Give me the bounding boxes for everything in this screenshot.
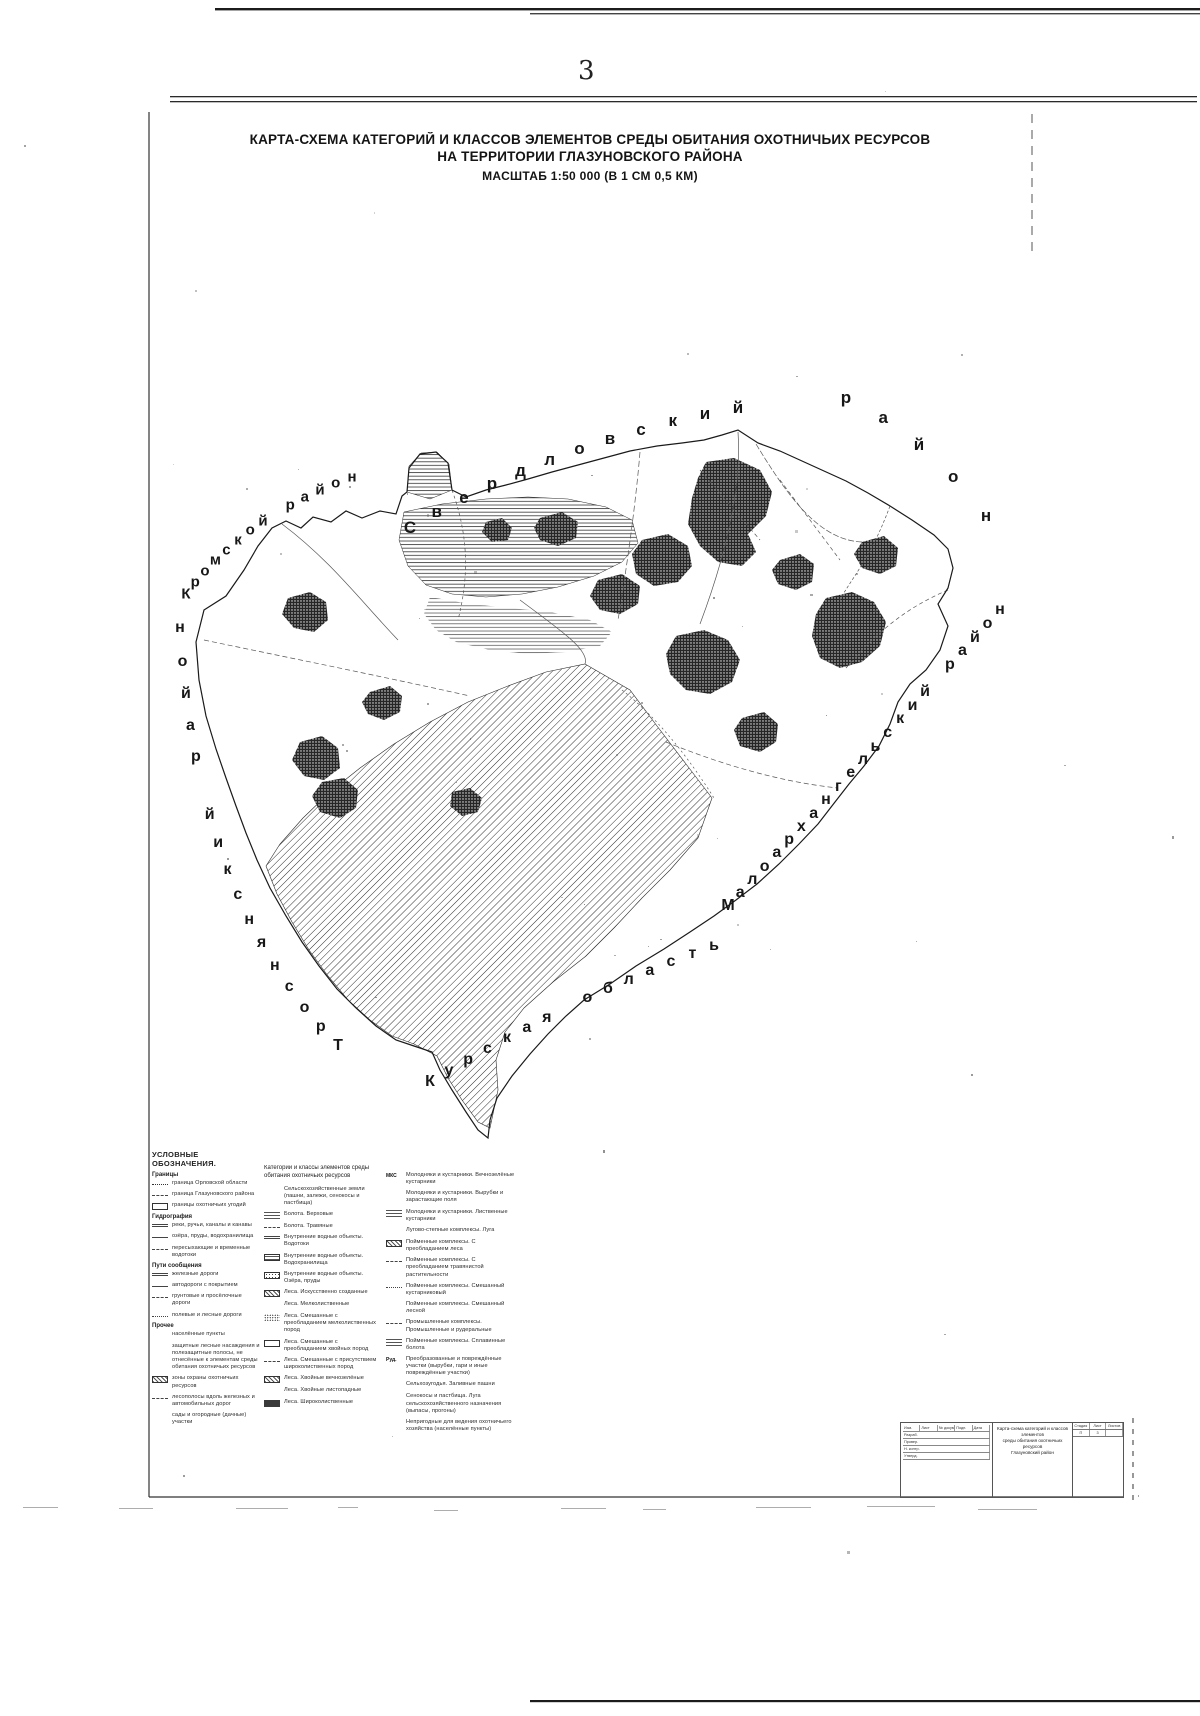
map-label-char-kurskaya: у	[445, 1062, 454, 1080]
scan-footer-noise	[561, 1508, 606, 1509]
legend-item: Внутренние водные объекты. Водотоки	[264, 1234, 380, 1248]
legend-item: защитные лесные насаждения и полезащитны…	[152, 1343, 260, 1372]
scan-noise-speck	[713, 597, 715, 599]
scan-footer-noise	[978, 1509, 1038, 1510]
map-label-char-kromskoy: м	[210, 552, 221, 569]
legend-item: Пойменные комплексы. Сплавинные болота	[386, 1338, 516, 1352]
title-block-title: Карта-схема категорий и классов элементо…	[993, 1423, 1073, 1497]
scan-noise-speck	[810, 594, 813, 597]
map-label-char-maloarkhangelsky: л	[858, 751, 868, 769]
map-label-char-maloarkhangelsky: х	[797, 818, 806, 836]
map-label-char-maloarkhangelsky: с	[883, 724, 892, 742]
legend-item: Молодняки и кустарники. Вырубки и зараст…	[386, 1190, 516, 1204]
title-block-title-line2: среды обитания охотничьих ресурсов	[995, 1438, 1070, 1450]
map-label-char-kurskaya: б	[603, 980, 613, 998]
scan-noise-speck	[660, 939, 662, 941]
legend-item-label: полевые и лесные дороги	[172, 1312, 242, 1319]
legend-column-2: Категории и классы элементов среды обита…	[264, 1165, 380, 1411]
map-label-char-maloarkhangelsky: н	[821, 791, 831, 809]
scan-noise-speck	[334, 814, 336, 816]
scan-noise-speck	[474, 571, 476, 573]
scan-noise-speck	[342, 744, 343, 745]
title-block-title-line1: Карта-схема категорий и классов элементо…	[995, 1426, 1070, 1438]
legend-swatch-blank	[386, 1382, 402, 1389]
legend-item-label: автодороги с покрытием	[172, 1282, 238, 1289]
stage-col-label: Стадия	[1073, 1423, 1090, 1429]
map-label-char-kromskoy: о	[331, 475, 340, 492]
stage-col-value	[1106, 1430, 1123, 1436]
legend-swatch-dark	[264, 1400, 280, 1407]
legend-swatch-tag: МКС	[386, 1173, 402, 1179]
map-label-char-maloarkhangelsky: й	[970, 629, 980, 647]
map-label-char-trosnyansky: с	[233, 886, 242, 904]
legend-item: лесополосы вдоль железных и автомобильны…	[152, 1394, 260, 1408]
legend-swatch-hatch	[386, 1240, 402, 1247]
scan-noise-speck	[470, 738, 472, 740]
legend-swatch-dash	[152, 1297, 168, 1298]
legend-swatch-blank	[264, 1187, 280, 1194]
scan-footer-noise	[23, 1507, 58, 1508]
legend-item: Внутренние водные объекты. Водохранилища	[264, 1253, 380, 1267]
map-label-char-maloarkhangelsky: о	[983, 615, 993, 633]
scan-noise-speck	[349, 486, 351, 488]
legend-swatch-hlines2	[386, 1210, 402, 1217]
legend-section-title: Границы	[152, 1172, 260, 1178]
map-label-char-kurskaya: я	[542, 1009, 551, 1027]
title-block-header-row: Изм.Лист№ докум.Подп.Дата	[903, 1425, 990, 1432]
legend-item-label: населённые пункты	[172, 1331, 225, 1338]
scan-noise-speck	[648, 946, 649, 947]
legend-item-label: Леса. Смешанные с преобладанием мелколис…	[284, 1313, 380, 1334]
title-block-stage: СтадияЛистЛистов П3	[1073, 1423, 1123, 1497]
scan-noise-speck	[795, 530, 798, 533]
scan-noise-speck	[392, 809, 393, 810]
legend-item: Болота. Травяные	[264, 1223, 380, 1230]
map-label-char-maloarkhangelsky: й	[920, 683, 930, 701]
scanned-page: 3 КАРТА-СХЕМА КАТЕГОРИЙ И КЛАССОВ ЭЛЕМЕН…	[0, 0, 1200, 1716]
legend-item: Леса. Смешанные с преобладанием мелколис…	[264, 1313, 380, 1334]
map-label-char-maloarkhangelsky: а	[809, 805, 818, 823]
map-label-char-trosnyansky: й	[181, 685, 191, 703]
legend-swatch-blank	[386, 1191, 402, 1198]
legend-item-label: граница Глазуновского района	[172, 1191, 254, 1198]
legend-item-label: сады и огородные (дачные) участки	[172, 1412, 260, 1426]
legend-item: Пойменные комплексы. С преобладанием тра…	[386, 1257, 516, 1278]
legend-section-title: Пути сообщения	[152, 1263, 260, 1269]
scan-noise-speck	[24, 145, 26, 147]
scan-noise-speck	[456, 782, 458, 784]
legend-item-label: Болота. Травяные	[284, 1223, 333, 1230]
scan-noise-speck	[424, 609, 426, 611]
map-label-char-sverdlovsky_rayon: а	[879, 408, 888, 428]
legend-section-title: Прочее	[152, 1323, 260, 1329]
page-number: 3	[578, 56, 595, 86]
map-label-char-kurskaya: р	[463, 1051, 473, 1069]
scan-noise-speck	[885, 91, 886, 92]
map-label-char-sverdlovsky_rayon: р	[841, 388, 851, 408]
legend-swatch-line	[152, 1237, 168, 1238]
legend-item-label: озёра, пруды, водохранилища	[172, 1233, 253, 1240]
legend-swatch-hatch	[264, 1290, 280, 1297]
scan-noise-speck	[603, 1150, 605, 1152]
stamp-role-label: Провер.	[903, 1439, 990, 1445]
map-label-char-maloarkhangelsky: ь	[870, 738, 880, 756]
legend-item: Сельскохозяйственные земли (пашни, залеж…	[264, 1186, 380, 1207]
map-label-char-kurskaya: к	[503, 1029, 511, 1047]
stamp-col-label: Изм.	[903, 1425, 920, 1431]
legend-item-label: Леса. Хвойные вечнозелёные	[284, 1375, 364, 1382]
legend-item-label: Болота. Верховые	[284, 1211, 333, 1218]
map-label-char-kurskaya: а	[522, 1019, 531, 1037]
legend-item: Леса. Широколиственные	[264, 1399, 380, 1407]
legend-swatch-blank	[386, 1394, 402, 1401]
map-label-char-trosnyansky: н	[270, 957, 280, 975]
legend-swatch-blank	[386, 1420, 402, 1427]
title-block: Изм.Лист№ докум.Подп.Дата Разраб.Провер.…	[900, 1422, 1124, 1498]
scan-footer-noise	[236, 1508, 288, 1509]
legend-swatch-dashdot	[152, 1184, 168, 1185]
legend-item: Леса. Мелколиственные	[264, 1301, 380, 1309]
scan-noise-speck	[687, 353, 689, 355]
legend-swatch-dot	[152, 1316, 168, 1317]
scan-noise-speck	[591, 475, 592, 476]
legend-item-label: Леса. Широколиственные	[284, 1399, 353, 1406]
map-label-char-kromskoy: о	[200, 562, 209, 579]
legend-item-label: граница Орловской области	[172, 1180, 247, 1187]
legend-item-label: Промышленные комплексы. Промышленные и р…	[406, 1319, 516, 1333]
legend-item-label: Пойменные комплексы. Смешанный лесной	[406, 1301, 516, 1315]
map-label-char-trosnyansky: о	[300, 999, 310, 1017]
scan-footer-noise	[756, 1507, 811, 1508]
map-label-char-sverdlovsky: й	[733, 398, 743, 418]
legend-item: Леса. Хвойные вечнозелёные	[264, 1375, 380, 1383]
map-label-char-sverdlovsky: о	[574, 439, 584, 459]
legend-item-label: Молодняки и кустарники. Лиственные куста…	[406, 1209, 516, 1223]
stamp-role-label: Разраб.	[903, 1432, 990, 1438]
scan-noise-speck	[427, 703, 429, 705]
map-label-char-kromskoy: к	[234, 531, 242, 548]
scan-noise-speck	[427, 514, 429, 516]
map-label-char-kurskaya: т	[688, 945, 696, 963]
legend-item-label: лесополосы вдоль железных и автомобильны…	[172, 1394, 260, 1408]
map-label-char-sverdlovsky: р	[487, 474, 497, 494]
stage-col-value: 3	[1090, 1430, 1107, 1436]
map-label-char-maloarkhangelsky: и	[908, 697, 918, 715]
hatched-area-north2	[424, 597, 612, 654]
legend-swatch-hlines2	[386, 1339, 402, 1346]
legend-swatch-dbl	[264, 1236, 280, 1239]
map-label-char-kromskoy: н	[347, 469, 356, 486]
scan-noise-speck	[561, 897, 563, 899]
legend-item-label: Внутренние водные объекты. Водотоки	[284, 1234, 380, 1248]
legend-item: Непригодные для ведения охотничьего хозя…	[386, 1419, 516, 1433]
legend-item: Леса. Смешанные с преобладанием хвойных …	[264, 1339, 380, 1353]
legend-item-label: пересыхающие и временные водотоки	[172, 1245, 260, 1259]
map-label-char-kurskaya: с	[667, 953, 676, 971]
legend-swatch-dbl	[152, 1224, 168, 1227]
legend-item-label: Пойменные комплексы. Сплавинные болота	[406, 1338, 516, 1352]
stamp-col-label: № докум.	[938, 1425, 955, 1431]
scan-noise-speck	[971, 1074, 973, 1076]
stage-col-value: П	[1073, 1430, 1090, 1436]
scan-noise-speck	[173, 464, 174, 465]
legend-swatch-blank	[152, 1332, 168, 1339]
map-label-char-maloarkhangelsky: к	[896, 710, 904, 728]
map-label-char-kurskaya: ь	[709, 937, 719, 955]
legend-item: граница Глазуновского района	[152, 1191, 260, 1198]
legend-item-label: Леса. Хвойные листопадные	[284, 1387, 361, 1394]
legend-item: Леса. Хвойные листопадные	[264, 1387, 380, 1395]
scan-footer-noise	[643, 1509, 666, 1510]
map-label-char-sverdlovsky: е	[459, 488, 468, 508]
map-title-line2: НА ТЕРРИТОРИИ ГЛАЗУНОВСКОГО РАЙОНА	[160, 149, 1020, 166]
legend-header: УСЛОВНЫЕ ОБОЗНАЧЕНИЯ.	[152, 1150, 260, 1168]
map-label-char-maloarkhangelsky: г	[835, 778, 842, 796]
legend-swatch-blank	[386, 1228, 402, 1235]
legend-item: железные дороги	[152, 1271, 260, 1278]
stage-value-row: П3	[1073, 1430, 1123, 1437]
legend-swatch-dash	[152, 1195, 168, 1196]
map-label-char-trosnyansky: я	[257, 934, 266, 952]
stamp-col-label: Лист	[920, 1425, 937, 1431]
map-title-line1: КАРТА-СХЕМА КАТЕГОРИЙ И КЛАССОВ ЭЛЕМЕНТО…	[160, 132, 1020, 149]
legend-item: границы охотничьих угодий	[152, 1202, 260, 1210]
legend-item-label: железные дороги	[172, 1271, 219, 1278]
map-label-char-maloarkhangelsky: М	[721, 897, 734, 915]
title-block-left: Изм.Лист№ докум.Подп.Дата Разраб.Провер.…	[901, 1423, 993, 1497]
legend-item: пересыхающие и временные водотоки	[152, 1245, 260, 1259]
legend-item-label: защитные лесные насаждения и полезащитны…	[172, 1343, 260, 1372]
scan-noise-speck	[944, 1334, 945, 1335]
map-label-char-sverdlovsky: с	[636, 420, 645, 440]
scan-noise-speck	[847, 1551, 849, 1553]
map-scale: МАСШТАБ 1:50 000 (В 1 СМ 0,5 КМ)	[160, 169, 1020, 183]
map-label-char-trosnyansky: н	[244, 911, 254, 929]
map-label-char-maloarkhangelsky: н	[995, 601, 1005, 619]
stamp-role-row: Н. контр.	[903, 1446, 990, 1453]
scan-footer-noise	[434, 1510, 457, 1511]
legend-item: полевые и лесные дороги	[152, 1312, 260, 1319]
map-label-char-sverdlovsky_rayon: о	[948, 467, 958, 487]
scan-noise-speck	[874, 610, 876, 612]
scan-noise-speck	[375, 997, 377, 999]
scan-noise-speck	[806, 488, 808, 490]
map-label-char-maloarkhangelsky: а	[958, 642, 967, 660]
map-label-char-maloarkhangelsky: р	[945, 656, 955, 674]
legend-swatch-line	[152, 1286, 168, 1287]
legend-item: населённые пункты	[152, 1331, 260, 1339]
stage-header-row: СтадияЛистЛистов	[1073, 1423, 1123, 1430]
stamp-role-row: Утверд.	[903, 1453, 990, 1460]
map-label-char-sverdlovsky: д	[515, 461, 526, 481]
stage-col-label: Лист	[1090, 1423, 1107, 1429]
map-label-char-sverdlovsky: С	[404, 518, 416, 538]
legend-item-label: Леса. Мелколиственные	[284, 1301, 349, 1308]
legend-swatch-hlines	[264, 1254, 280, 1261]
legend-swatch-blank	[264, 1388, 280, 1395]
legend-swatch-blank	[386, 1302, 402, 1309]
legend-item: Руд.Преобразованные и повреждённые участ…	[386, 1356, 516, 1377]
scan-noise-speck	[195, 290, 197, 292]
legend-item: Промышленные комплексы. Промышленные и р…	[386, 1319, 516, 1333]
map-label-char-kromskoy: й	[315, 481, 324, 498]
map-label-char-kurskaya: К	[425, 1073, 435, 1091]
legend-item: Леса. Искусственно созданные	[264, 1289, 380, 1297]
stamp-role-row: Разраб.	[903, 1432, 990, 1439]
map-label-char-maloarkhangelsky: е	[846, 764, 855, 782]
scan-footer-noise	[338, 1507, 358, 1508]
scan-noise-speck	[227, 858, 229, 860]
legend-item-label: реки, ручьи, каналы и канавы	[172, 1222, 252, 1229]
map-label-char-kurskaya: а	[645, 962, 654, 980]
map-label-char-kurskaya: с	[483, 1040, 492, 1058]
legend-item-label: грунтовые и просёлочные дороги	[172, 1293, 260, 1307]
legend-item-label: Лугово-степные комплексы. Луга	[406, 1227, 495, 1234]
map-label-char-trosnyansky: н	[175, 619, 185, 637]
scan-noise-speck	[697, 834, 699, 836]
legend-item: сады и огородные (дачные) участки	[152, 1412, 260, 1426]
legend-item: реки, ручьи, каналы и канавы	[152, 1222, 260, 1229]
legend-swatch-dash	[386, 1323, 402, 1324]
scan-noise-speck	[961, 354, 963, 356]
stage-col-label: Листов	[1106, 1423, 1123, 1429]
legend-item-label: Молодняки и кустарники. Вечнозелёные кус…	[406, 1172, 516, 1186]
map-label-char-kromskoy: а	[301, 489, 309, 506]
legend-item-label: Внутренние водные объекты. Водохранилища	[284, 1253, 380, 1267]
scan-noise-speck	[589, 1038, 591, 1040]
scan-noise-speck	[1064, 765, 1065, 766]
legend-item: озёра, пруды, водохранилища	[152, 1233, 260, 1240]
scan-noise-speck	[584, 904, 585, 905]
legend-item-label: Преобразованные и повреждённые участки (…	[406, 1356, 516, 1377]
stamp-role-label: Утверд.	[903, 1453, 990, 1459]
scan-noise-speck	[826, 715, 827, 716]
map-label-char-kromskoy: о	[246, 522, 255, 539]
scan-noise-speck	[737, 924, 739, 926]
legend-item: Сенокосы и пастбища. Луга сельскохозяйст…	[386, 1393, 516, 1414]
legend-item-label: Леса. Смешанные с присутствием широколис…	[284, 1357, 380, 1371]
legend-item-label: Внутренние водные объекты. Озёра, пруды	[284, 1271, 380, 1285]
legend-swatch-blank	[264, 1302, 280, 1309]
legend-item: Болота. Верховые	[264, 1211, 380, 1219]
legend-item: автодороги с покрытием	[152, 1282, 260, 1289]
scan-noise-speck	[796, 376, 797, 377]
scan-noise-speck	[1172, 836, 1174, 838]
map-label-char-kurskaya: о	[582, 989, 592, 1007]
legend-swatch-rect	[152, 1203, 168, 1210]
scan-noise-speck	[419, 618, 420, 619]
legend-item-label: Пойменные комплексы. Смешанный кустарник…	[406, 1283, 516, 1297]
map-label-char-sverdlovsky: л	[544, 450, 555, 470]
legend-swatch-dot	[386, 1287, 402, 1288]
scan-noise-speck	[346, 750, 348, 752]
legend-item-label: зоны охраны охотничьих ресурсов	[172, 1375, 260, 1389]
title-block-roles: Разраб.Провер.Н. контр.Утверд.	[903, 1432, 990, 1460]
map-label-char-sverdlovsky: и	[700, 404, 710, 424]
map-label-char-trosnyansky: и	[213, 834, 223, 852]
stamp-col-label: Дата	[973, 1425, 990, 1431]
map-label-char-trosnyansky: й	[205, 806, 215, 824]
scan-noise-speck	[614, 955, 616, 957]
scan-footer-noise	[119, 1508, 152, 1509]
legend-swatch-blank	[152, 1413, 168, 1420]
scan-noise-speck	[407, 493, 408, 494]
map-label-char-trosnyansky: Т	[333, 1037, 343, 1055]
map-label-char-sverdlovsky: в	[605, 429, 615, 449]
scan-noise-speck	[742, 626, 743, 627]
map-label-char-trosnyansky: с	[285, 978, 294, 996]
map-label-char-maloarkhangelsky: р	[784, 831, 794, 849]
legend-item: Пойменные комплексы. Смешанный лесной	[386, 1301, 516, 1315]
legend-swatch-dash	[152, 1249, 168, 1250]
legend-item: Леса. Смешанные с присутствием широколис…	[264, 1357, 380, 1371]
map-label-char-maloarkhangelsky: о	[760, 858, 770, 876]
legend-swatch-dbl	[152, 1273, 168, 1276]
map-label-char-trosnyansky: р	[191, 748, 201, 766]
map-label-char-trosnyansky: р	[316, 1018, 326, 1036]
stamp-role-row: Провер.	[903, 1439, 990, 1446]
scan-noise-speck	[717, 838, 718, 839]
legend-swatch-dots	[264, 1272, 280, 1279]
map-label-char-sverdlovsky: к	[668, 411, 677, 431]
legend-column-1: УСЛОВНЫЕ ОБОЗНАЧЕНИЯ. Границыграница Орл…	[152, 1150, 260, 1430]
scan-noise-speck	[1138, 1495, 1140, 1497]
legend-item-label: границы охотничьих угодий	[172, 1202, 246, 1209]
legend-item-label: Пойменные комплексы. С преобладанием лес…	[406, 1239, 516, 1253]
legend-item: Сельхозугодья. Заливные пашни	[386, 1381, 516, 1389]
hatched-area-south	[266, 664, 712, 1128]
legend-item-label: Сенокосы и пастбища. Луга сельскохозяйст…	[406, 1393, 516, 1414]
scan-noise-speck	[641, 702, 643, 704]
scan-noise-speck	[183, 1475, 185, 1477]
scan-noise-speck	[881, 693, 884, 696]
legend-item: МКСМолодняки и кустарники. Вечнозелёные …	[386, 1172, 516, 1186]
map-label-char-trosnyansky: а	[186, 717, 195, 735]
scan-noise-speck	[392, 1436, 393, 1437]
scan-noise-speck	[616, 754, 618, 756]
legend-item-label: Непригодные для ведения охотничьего хозя…	[406, 1419, 516, 1433]
legend-item-label: Молодняки и кустарники. Вырубки и зараст…	[406, 1190, 516, 1204]
legend-swatch-hlines2	[264, 1212, 280, 1219]
scan-noise-speck	[374, 212, 376, 214]
map-label-char-kromskoy: К	[181, 586, 190, 603]
legend-item: грунтовые и просёлочные дороги	[152, 1293, 260, 1307]
map-label-char-maloarkhangelsky: а	[736, 884, 745, 902]
legend-item-label: Сельскохозяйственные земли (пашни, залеж…	[284, 1186, 380, 1207]
legend-item-label: Пойменные комплексы. С преобладанием тра…	[406, 1257, 516, 1278]
map-label-char-kromskoy: р	[191, 574, 200, 591]
legend-categories-header: Категории и классы элементов среды обита…	[264, 1165, 380, 1181]
legend-item: зоны охраны охотничьих ресурсов	[152, 1375, 260, 1389]
legend-item: Пойменные комплексы. С преобладанием лес…	[386, 1239, 516, 1253]
legend-item: Внутренние водные объекты. Озёра, пруды	[264, 1271, 380, 1285]
legend-item-label: Леса. Смешанные с преобладанием хвойных …	[284, 1339, 380, 1353]
map-label-char-sverdlovsky: в	[431, 502, 441, 522]
scan-footer-noise	[867, 1506, 935, 1507]
scan-noise-speck	[770, 949, 771, 950]
legend-item-label: Сельхозугодья. Заливные пашни	[406, 1381, 495, 1388]
map-label-char-kurskaya: л	[624, 971, 634, 989]
map-label-char-sverdlovsky_rayon: н	[981, 506, 991, 526]
scan-noise-speck	[246, 488, 248, 490]
legend-swatch-hatch	[152, 1376, 168, 1383]
legend-column-3: МКСМолодняки и кустарники. Вечнозелёные …	[386, 1172, 516, 1437]
legend-swatch-tag: Руд.	[386, 1357, 402, 1363]
legend-swatch-blank	[152, 1344, 168, 1351]
scan-noise-speck	[856, 573, 858, 575]
legend-swatch-rect	[264, 1340, 280, 1347]
legend-swatch-dash	[386, 1261, 402, 1262]
